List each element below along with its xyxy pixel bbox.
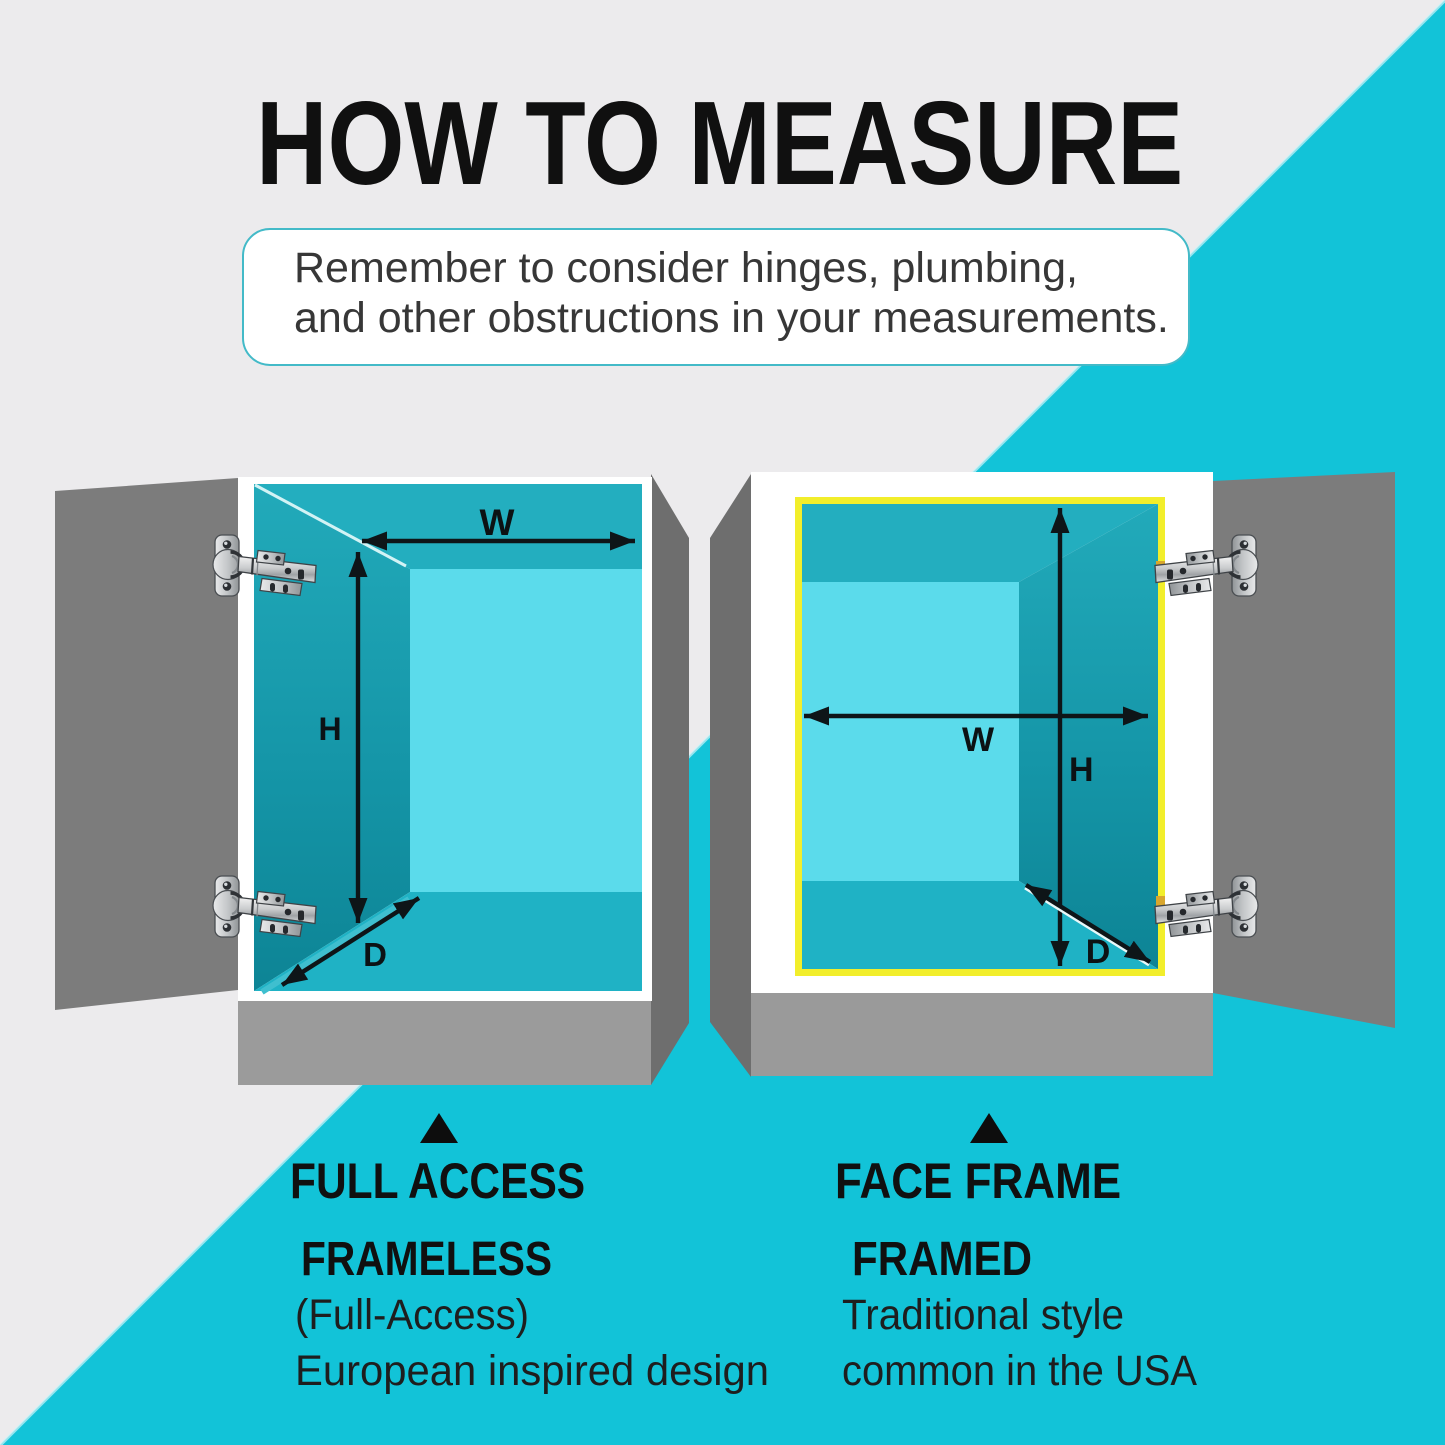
svg-text:H: H (318, 711, 341, 747)
svg-text:W: W (962, 721, 995, 759)
svg-text:H: H (1069, 751, 1094, 789)
svg-text:D: D (363, 936, 387, 973)
svg-text:W: W (480, 502, 515, 543)
svg-text:D: D (1086, 933, 1111, 971)
